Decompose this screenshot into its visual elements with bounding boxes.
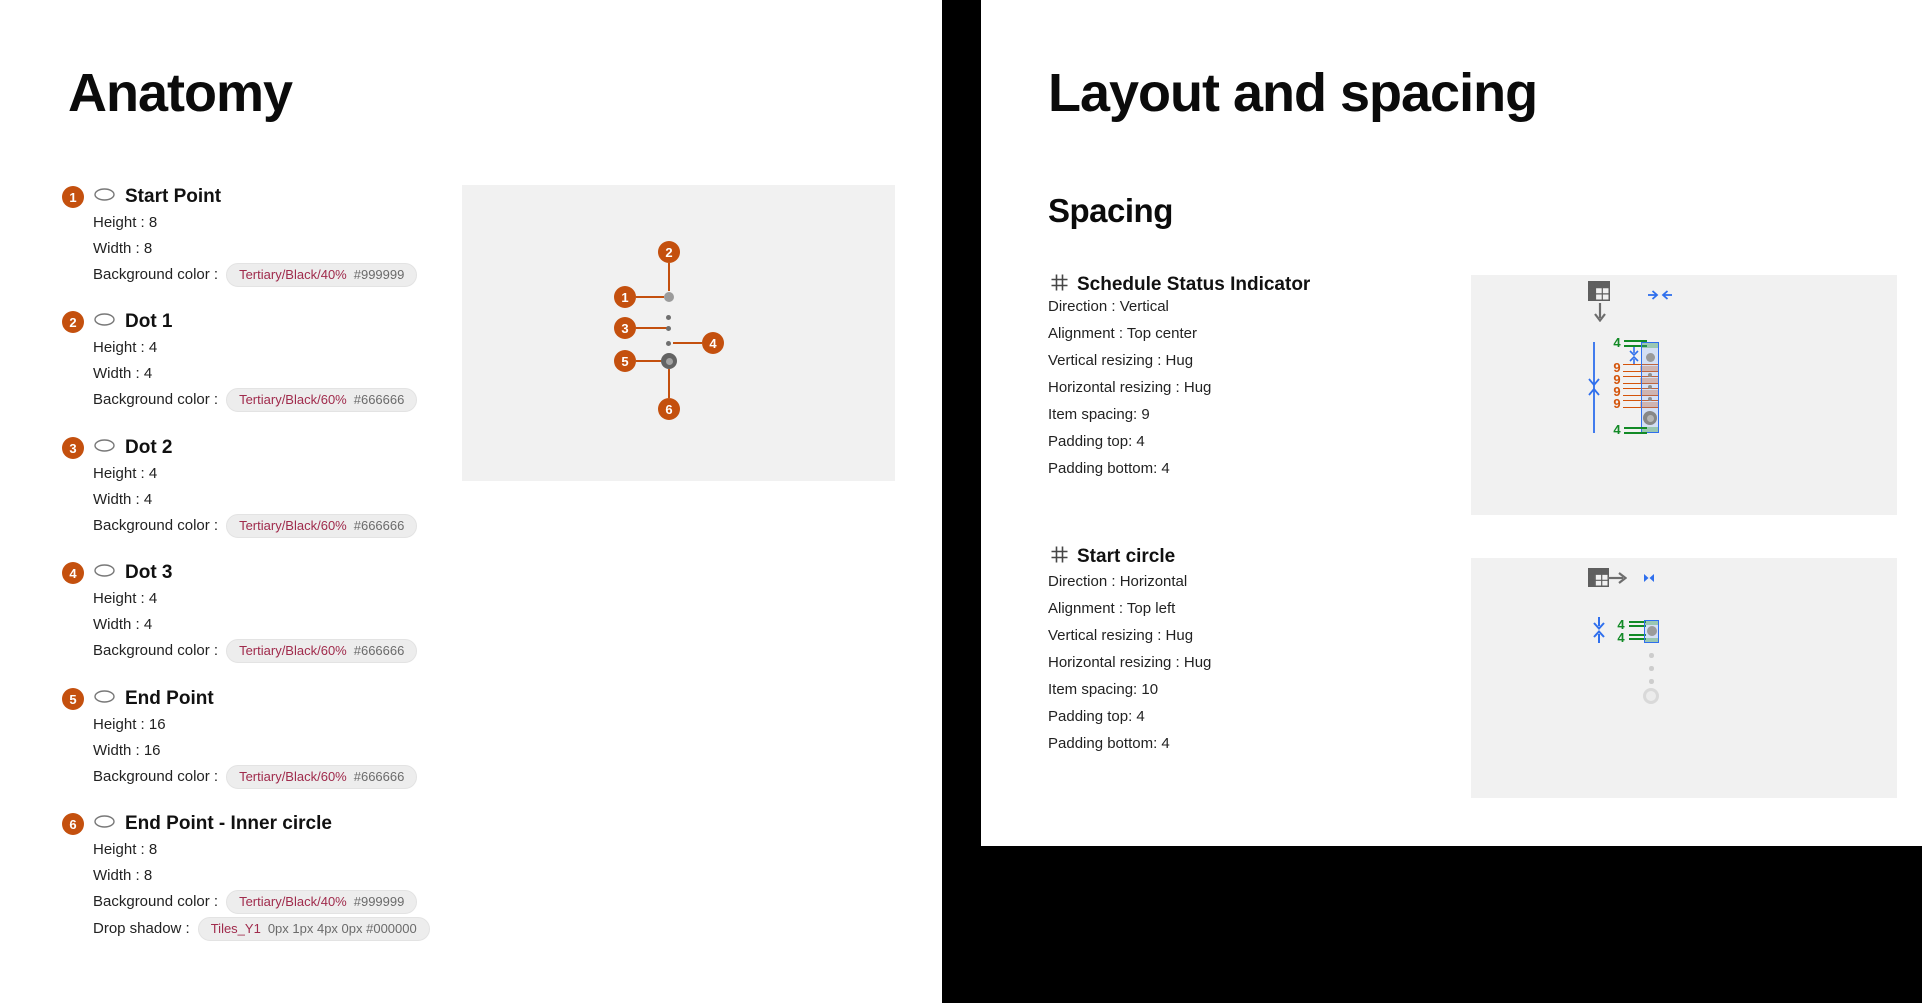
end-point-inner-circle — [666, 358, 673, 365]
item-name: End Point - Inner circle — [125, 813, 332, 835]
vertical-resizing-spec: Vertical resizing : Hug — [1048, 351, 1193, 371]
shadow-label: Drop shadow : — [93, 919, 190, 939]
item-header: 3 Dot 2 — [62, 437, 492, 459]
vertical-resizing-spec: Vertical resizing : Hug — [1048, 626, 1193, 646]
color-token-pill: Tertiary/Black/60% #666666 — [226, 639, 417, 663]
color-token-pill: Tertiary/Black/40% #999999 — [226, 263, 417, 287]
bg-label: Background color : — [93, 265, 218, 285]
width-spec: Width : 4 — [93, 364, 152, 384]
diagram-badge-5: 5 — [614, 350, 636, 372]
item-name: Dot 1 — [125, 311, 173, 333]
item-name: End Point — [125, 688, 214, 710]
start-point-circle — [1646, 353, 1655, 362]
token-name: Tertiary/Black/60% — [239, 766, 347, 788]
color-token-pill: Tertiary/Black/60% #666666 — [226, 388, 417, 412]
bg-label: Background color : — [93, 390, 218, 410]
callout-line-1 — [636, 296, 664, 298]
dot-3 — [666, 341, 671, 346]
hug-horizontal-small-icon — [1643, 570, 1655, 588]
padding-top-spec: Padding top: 4 — [1048, 707, 1145, 727]
diagram-badge-6: 6 — [658, 398, 680, 420]
number-badge: 3 — [62, 437, 84, 459]
height-spec: Height : 4 — [93, 464, 157, 484]
background-color-spec: Background color : Tertiary/Black/60% #6… — [93, 641, 417, 661]
item-header: 2 Dot 1 — [62, 311, 492, 333]
alignment-spec: Alignment : Top left — [1048, 599, 1175, 619]
ghost-dot-1 — [1649, 653, 1654, 658]
background-color-spec: Background color : Tertiary/Black/40% #9… — [93, 892, 417, 912]
padding-bottom-value: 4 — [1614, 631, 1628, 645]
grid-table-icon — [1588, 568, 1609, 592]
item-header: 1 Start Point — [62, 186, 492, 208]
number-badge: 6 — [62, 813, 84, 835]
item-header: 4 Dot 3 — [62, 562, 492, 584]
ghost-end-circle — [1643, 688, 1659, 704]
number-badge: 4 — [62, 562, 84, 584]
callout-line-5 — [636, 360, 662, 362]
ellipse-icon — [94, 564, 115, 582]
width-spec: Width : 8 — [93, 239, 152, 259]
bg-label: Background color : — [93, 892, 218, 912]
item-spacing-spec: Item spacing: 10 — [1048, 680, 1158, 700]
background-color-spec: Background color : Tertiary/Black/60% #6… — [93, 516, 417, 536]
token-hex: #999999 — [354, 891, 405, 913]
height-spec: Height : 4 — [93, 589, 157, 609]
padding-top-value: 4 — [1610, 336, 1624, 350]
color-token-pill: Tertiary/Black/40% #999999 — [226, 890, 417, 914]
shadow-token-pill: Tiles_Y1 0px 1px 4px 0px #000000 — [198, 917, 430, 941]
anatomy-item-start-point: 1 Start Point Height : 8 Width : 8 Backg… — [62, 186, 492, 286]
height-spec: Height : 16 — [93, 715, 166, 735]
item-header: 5 End Point — [62, 688, 492, 710]
anatomy-title: Anatomy — [68, 64, 292, 122]
canvas-background-black — [981, 846, 1922, 1003]
callout-line-3 — [636, 327, 667, 329]
dot-2 — [1648, 385, 1652, 389]
anatomy-item-dot-1: 2 Dot 1 Height : 4 Width : 4 Background … — [62, 311, 492, 411]
token-name: Tertiary/Black/40% — [239, 891, 347, 913]
number-badge: 2 — [62, 311, 84, 333]
ellipse-icon — [94, 690, 115, 708]
padding-line — [1624, 427, 1647, 429]
token-name: Tertiary/Black/60% — [239, 640, 347, 662]
direction-spec: Direction : Horizontal — [1048, 572, 1187, 592]
drop-shadow-spec: Drop shadow : Tiles_Y1 0px 1px 4px 0px #… — [93, 919, 430, 939]
diagram-badge-1: 1 — [614, 286, 636, 308]
direction-spec: Direction : Vertical — [1048, 297, 1169, 317]
arrow-right-icon — [1608, 571, 1627, 590]
padding-bottom-spec: Padding bottom: 4 — [1048, 459, 1170, 479]
anatomy-item-dot-3: 4 Dot 3 Height : 4 Width : 4 Background … — [62, 562, 492, 662]
callout-line-4 — [673, 342, 702, 344]
ellipse-icon — [94, 313, 115, 331]
background-color-spec: Background color : Tertiary/Black/60% #6… — [93, 390, 417, 410]
anatomy-item-dot-2: 3 Dot 2 Height : 4 Width : 4 Background … — [62, 437, 492, 537]
callout-line-2 — [668, 263, 670, 291]
background-color-spec: Background color : Tertiary/Black/60% #6… — [93, 767, 417, 787]
section-name: Start circle — [1077, 546, 1175, 568]
padding-bottom-band — [1645, 638, 1658, 642]
end-point-inner-circle — [1647, 415, 1654, 422]
section-name: Schedule Status Indicator — [1077, 274, 1310, 296]
spacing-heading: Spacing — [1048, 190, 1173, 232]
bg-label: Background color : — [93, 767, 218, 787]
gap-value: 9 — [1610, 397, 1624, 411]
alignment-spec: Alignment : Top center — [1048, 324, 1197, 344]
arrow-down-icon — [1593, 303, 1607, 327]
bg-label: Background color : — [93, 641, 218, 661]
token-hex: #666666 — [354, 515, 405, 537]
diagram-badge-3: 3 — [614, 317, 636, 339]
padding-top-spec: Padding top: 4 — [1048, 432, 1145, 452]
number-badge: 1 — [62, 186, 84, 208]
ghost-dot-3 — [1649, 679, 1654, 684]
width-spec: Width : 16 — [93, 741, 161, 761]
callout-line-6 — [668, 369, 670, 398]
panel-divider — [942, 0, 981, 1003]
height-spec: Height : 8 — [93, 840, 157, 860]
spacing-diagram-horizontal: 4 4 — [1471, 558, 1897, 798]
token-hex: #666666 — [354, 389, 405, 411]
width-spec: Width : 8 — [93, 866, 152, 886]
color-token-pill: Tertiary/Black/60% #666666 — [226, 514, 417, 538]
width-spec: Width : 4 — [93, 615, 152, 635]
ghost-dot-2 — [1649, 666, 1654, 671]
token-name: Tertiary/Black/40% — [239, 264, 347, 286]
height-measure-arrow — [1587, 342, 1601, 438]
frame-grid-icon — [1051, 274, 1068, 296]
padding-bottom-value: 4 — [1610, 423, 1624, 437]
section-schedule-status-indicator: Schedule Status Indicator — [1051, 273, 1310, 297]
padding-top-band — [1642, 343, 1658, 348]
item-header: 6 End Point - Inner circle — [62, 813, 492, 835]
dot-2 — [666, 326, 671, 331]
number-badge: 5 — [62, 688, 84, 710]
token-name: Tertiary/Black/60% — [239, 515, 347, 537]
hug-vertical-icon — [1591, 617, 1607, 648]
start-point-circle — [1647, 626, 1657, 636]
height-spec: Height : 4 — [93, 338, 157, 358]
hug-horizontal-icon — [1647, 288, 1673, 307]
item-name: Dot 2 — [125, 437, 173, 459]
bg-label: Background color : — [93, 516, 218, 536]
horizontal-resizing-spec: Horizontal resizing : Hug — [1048, 378, 1211, 398]
section-start-circle: Start circle — [1051, 545, 1175, 569]
frame-grid-icon — [1051, 546, 1068, 568]
token-name: Tertiary/Black/60% — [239, 389, 347, 411]
layout-title: Layout and spacing — [1048, 64, 1537, 122]
item-name: Dot 3 — [125, 562, 173, 584]
background-color-spec: Background color : Tertiary/Black/40% #9… — [93, 265, 417, 285]
ellipse-icon — [94, 815, 115, 833]
diagram-badge-4: 4 — [702, 332, 724, 354]
horizontal-resizing-spec: Horizontal resizing : Hug — [1048, 653, 1211, 673]
diagram-badge-2: 2 — [658, 241, 680, 263]
padding-line — [1624, 432, 1647, 434]
color-token-pill: Tertiary/Black/60% #666666 — [226, 765, 417, 789]
item-spacing-spec: Item spacing: 9 — [1048, 405, 1150, 425]
end-point-circle — [1643, 411, 1657, 425]
end-point-circle — [661, 353, 677, 369]
height-spec: Height : 8 — [93, 213, 157, 233]
token-name: Tiles_Y1 — [211, 918, 261, 940]
padding-top-band — [1645, 621, 1658, 625]
ellipse-icon — [94, 188, 115, 206]
spacing-diagram-vertical: 4 9 9 9 9 4 — [1471, 275, 1897, 515]
padding-bottom-spec: Padding bottom: 4 — [1048, 734, 1170, 754]
anatomy-item-end-point: 5 End Point Height : 16 Width : 16 Backg… — [62, 688, 492, 788]
anatomy-item-end-point-inner-circle: 6 End Point - Inner circle Height : 8 Wi… — [62, 813, 492, 943]
width-spec: Width : 4 — [93, 490, 152, 510]
token-hex: #666666 — [354, 640, 405, 662]
dot-3 — [1648, 397, 1652, 401]
token-hex: #666666 — [354, 766, 405, 788]
shadow-values: 0px 1px 4px 0px #000000 — [268, 918, 417, 940]
dot-1 — [666, 315, 671, 320]
item-name: Start Point — [125, 186, 221, 208]
token-hex: #999999 — [354, 264, 405, 286]
design-spec-page: Anatomy 1 Start Point Height : 8 Width :… — [0, 0, 1922, 1003]
start-point-circle — [664, 292, 674, 302]
anatomy-diagram-canvas: 2 1 3 4 5 6 — [462, 185, 895, 481]
dot-1 — [1648, 373, 1652, 377]
ellipse-icon — [94, 439, 115, 457]
